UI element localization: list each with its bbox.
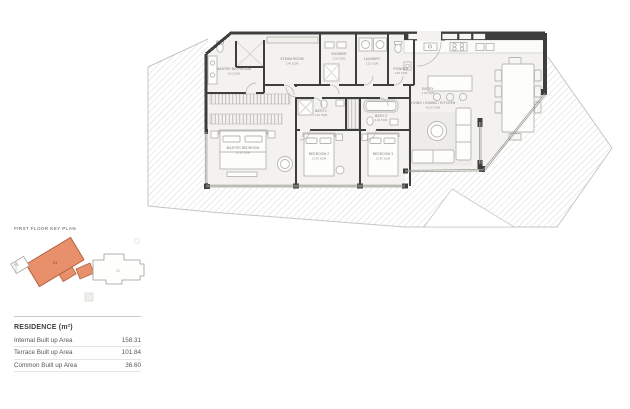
key-plan-title: FIRST FLOOR KEY PLAN [14,226,76,231]
legend-row-value: 158.31 [122,337,141,344]
key-plan-marker [135,239,140,244]
label-master-bathroom: MASTER BATHROOM [217,67,252,71]
wardrobe [210,114,282,124]
legend-row-internal: Internal Built up Area 158.31 [14,334,141,347]
brochure-page: MASTER BATHROOM 6.10 SQM STEAM ROOM 3.40… [0,0,630,409]
area-bath-2: 4.20 SQM [315,113,328,117]
label-steam-room: STEAM ROOM [280,57,303,61]
residence-area-legend: RESIDENCE (m²) Internal Built up Area 15… [14,316,141,372]
area-living: 46.50 SQM [426,106,441,110]
key-plan-adjacent-number: 02 [116,268,121,273]
key-plan-connector [76,263,94,279]
legend-row-common: Common Built up Area 36.60 [14,360,141,373]
key-plan: 01 02 [11,231,144,301]
label-master-bedroom: MASTER BEDROOM [227,146,260,150]
legend-row-terrace: Terrace Built up Area 101.84 [14,347,141,360]
label-living: LIVING / DINING / KITCHEN [411,101,456,105]
legend-row-label: Terrace Built up Area [14,349,72,356]
legend-row-value: 36.60 [125,362,141,369]
label-bedroom-3: BEDROOM 3 [373,152,394,156]
area-bath-3: 4.40 SQM [375,118,388,122]
closet [347,100,359,129]
area-powder: 2.60 SQM [395,71,408,75]
steam-bench [267,37,318,43]
legend-title: RESIDENCE (m²) [14,324,141,331]
legend-divider [14,316,141,317]
wardrobe [210,94,290,104]
kitchen-counter [404,40,545,53]
kitchen-island [428,76,472,101]
area-bedroom-3: 12.80 SQM [376,157,391,161]
area-steam-room: 3.40 SQM [286,62,299,66]
legend-row-label: Common Built up Area [14,362,77,369]
key-plan-core-block [85,293,93,301]
label-shower: SHOWER [331,52,347,56]
label-bedroom-2: BEDROOM 2 [309,152,330,156]
area-master-bathroom: 6.10 SQM [228,72,241,76]
label-laundry: LAUNDRY [364,57,381,61]
legend-row-value: 101.84 [122,349,141,356]
area-master-bedroom: 18.30 SQM [236,151,251,155]
key-plan-unit-number: 01 [53,260,58,265]
area-entry: 4.10 SQM [422,91,435,95]
area-laundry: 3.10 SQM [366,62,379,66]
dining-table [495,58,541,141]
legend-row-label: Internal Built up Area [14,337,72,344]
area-shower: 3.20 SQM [333,57,346,61]
area-bedroom-2: 12.60 SQM [312,157,327,161]
